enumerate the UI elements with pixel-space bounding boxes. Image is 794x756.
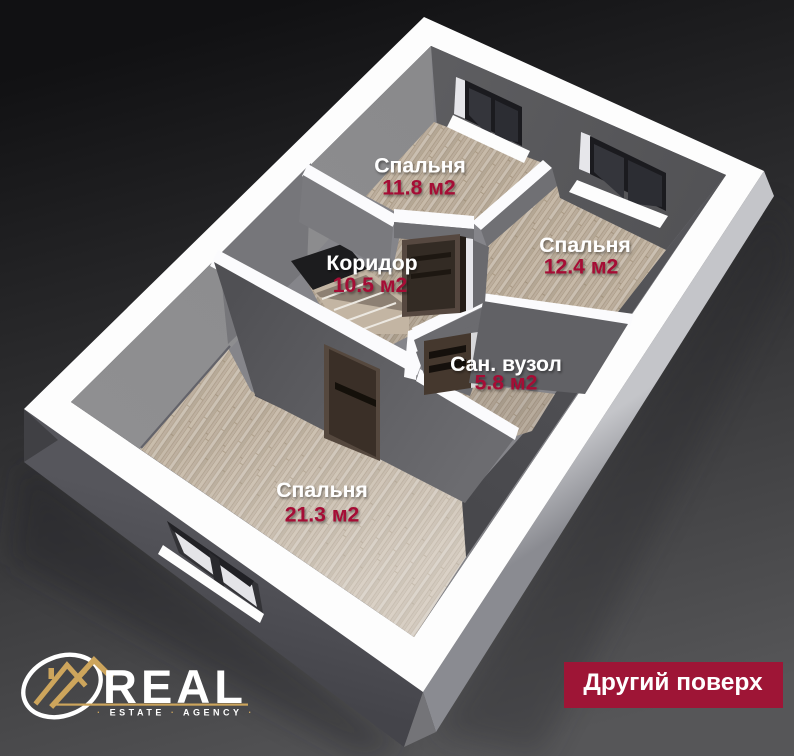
svg-text:5.8 м2: 5.8 м2 [475, 372, 538, 395]
svg-text:21.3 м2: 21.3 м2 [285, 504, 360, 527]
svg-text:10.5 м2: 10.5 м2 [333, 274, 408, 297]
svg-text:Другий поверх: Другий поверх [583, 669, 763, 696]
svg-text:· ESTATE · AGENCY ·: · ESTATE · AGENCY · [97, 708, 255, 718]
svg-text:Спальня: Спальня [539, 234, 631, 257]
svg-text:Коридор: Коридор [326, 252, 417, 275]
svg-text:11.8 м2: 11.8 м2 [382, 177, 455, 200]
svg-text:12.4 м2: 12.4 м2 [544, 256, 619, 279]
svg-text:Спальня: Спальня [276, 479, 368, 502]
svg-text:Спальня: Спальня [374, 155, 466, 178]
